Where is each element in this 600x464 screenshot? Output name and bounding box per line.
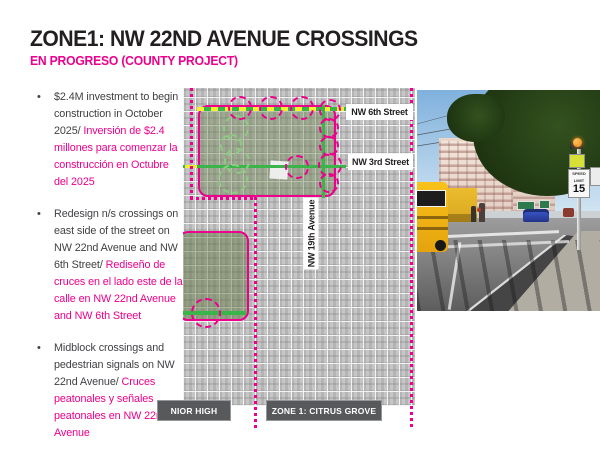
list-item: • Redesign n/s crossings on east side of…: [30, 206, 182, 325]
crossing-marker-pink: [259, 96, 283, 120]
bullet-text: Midblock crossings and pedestrian signal…: [54, 340, 184, 442]
aerial-map: NW 6th Street NW 3rd Street NW 19th Aven…: [183, 88, 415, 406]
zone-boundary-dotted-jog: [190, 197, 256, 200]
bus-window: [417, 190, 446, 207]
bullet-text: Redesign n/s crossings on east side of t…: [54, 206, 184, 325]
bullet-text-en: Midblock crossings and pedestrian signal…: [54, 342, 175, 388]
bullet-text: $2.4M investment to begin construction i…: [54, 89, 184, 191]
list-item: • $2.4M investment to begin construction…: [30, 89, 182, 191]
pedestrian-bag: [477, 208, 481, 212]
zone-boundary-dotted-west: [190, 88, 193, 200]
street-label-nw-3rd: NW 3rd Street: [348, 154, 413, 170]
label-junior-high: NIOR HIGH: [157, 400, 231, 421]
school-bus: [417, 182, 448, 252]
bullet-icon: •: [37, 340, 41, 357]
bus-wheel: [435, 240, 446, 251]
bullet-icon: •: [37, 206, 41, 223]
bus-stripe: [417, 227, 448, 230]
list-item: • Midblock crossings and pedestrian sign…: [30, 340, 182, 442]
pedestrian: [479, 203, 485, 222]
crossing-marker-green: [218, 164, 248, 194]
crossing-marker-pink: [290, 96, 314, 120]
street-photo: SPEED LIMIT 15: [417, 90, 600, 311]
red-car: [563, 208, 574, 217]
page-subtitle: EN PROGRESO (COUNTY PROJECT): [30, 54, 447, 68]
street-label-nw-6th: NW 6th Street: [346, 104, 413, 120]
speed-limit-sign: SPEED LIMIT 15: [568, 169, 590, 198]
crossing-marker-pink: [285, 155, 309, 179]
school-beacon-light: [573, 138, 582, 147]
blue-car: [523, 209, 549, 222]
bus-stripe: [417, 216, 448, 219]
crossing-marker-pink: [191, 298, 221, 328]
crossing-marker-pink: [319, 173, 339, 193]
speed-limit-word: SPEED: [569, 172, 589, 177]
bullet-icon: •: [37, 89, 41, 106]
pedestrian: [471, 206, 476, 222]
sign-plaque: [590, 167, 600, 186]
label-zone1-citrus-grove: ZONE 1: CITRUS GROVE: [266, 400, 382, 421]
zone-boundary-dotted-southwest: [254, 197, 257, 428]
street-sign-green: [539, 200, 550, 209]
crossing-marker-pink: [319, 118, 339, 138]
street-label-nw-19th: NW 19th Avenue: [304, 198, 319, 270]
school-zone-sign: [569, 154, 585, 168]
speed-limit-value: 15: [569, 183, 589, 195]
zone-boundary-dotted-east: [410, 88, 413, 428]
slide: ZONE1: NW 22ND AVENUE CROSSINGS EN PROGR…: [0, 0, 600, 464]
page-title: ZONE1: NW 22ND AVENUE CROSSINGS: [30, 26, 443, 52]
